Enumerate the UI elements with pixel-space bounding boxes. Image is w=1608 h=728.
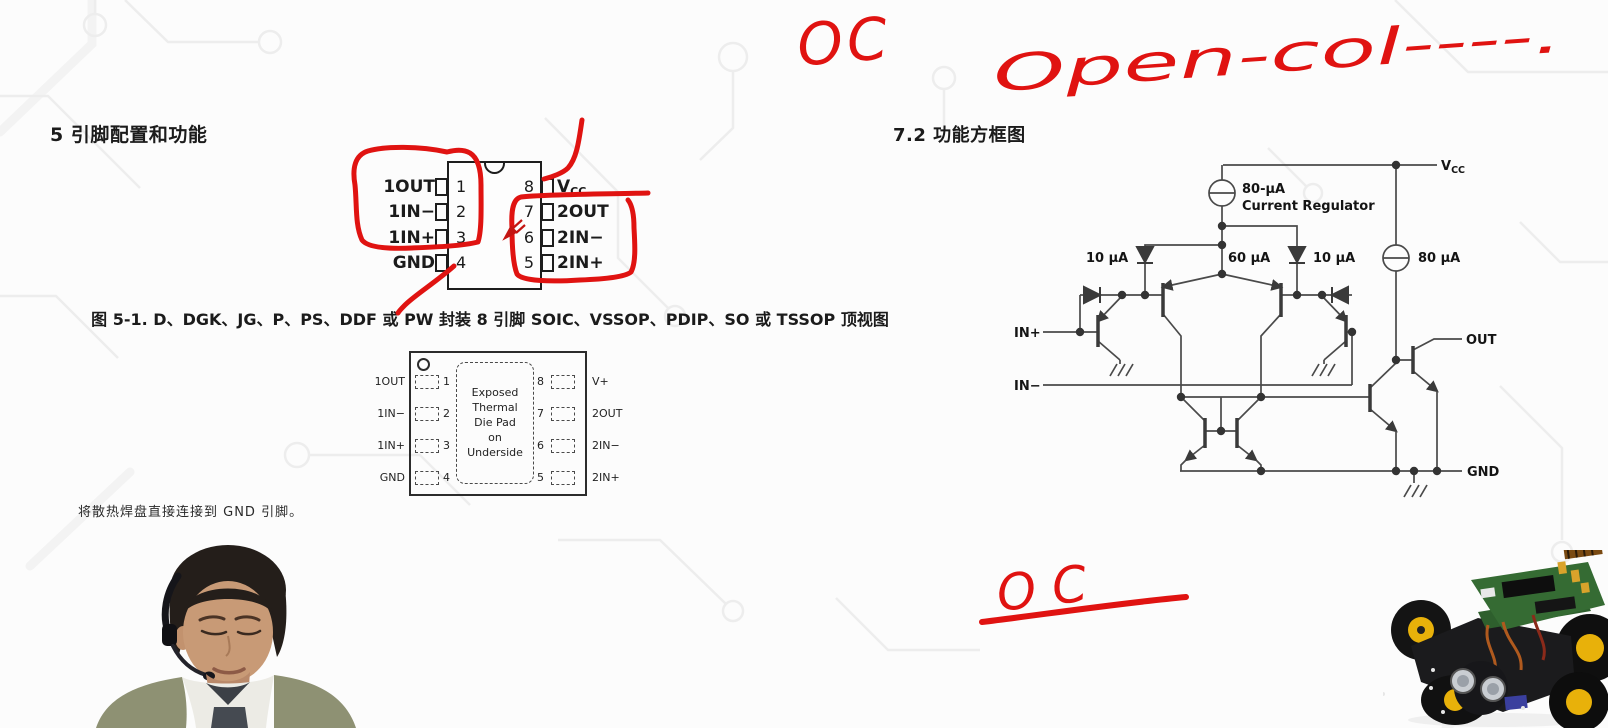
package2-pin3-label: 1IN+: [350, 439, 405, 453]
package1-pin3-stub: [435, 229, 448, 247]
package1-pin1-number: 1: [456, 177, 474, 197]
section-5-title: 5 引脚配置和功能: [50, 120, 207, 147]
package2-pin3-number: 3: [443, 439, 455, 453]
package1-pin2-number: 2: [456, 202, 474, 222]
package2-pin6-label: 2IN−: [592, 439, 652, 453]
package1-pin1-label: 1OUT: [355, 176, 435, 198]
package2-pin4-label: GND: [350, 471, 405, 485]
figure-5-1-caption: 图 5-1. D、DGK、JG、P、PS、DDF 或 PW 封装 8 引脚 SO…: [60, 306, 920, 330]
regulator-text-label: Current Regulator: [1242, 199, 1375, 214]
package1-pin6-label: 2IN−: [557, 227, 637, 249]
package2-pin8-pad: [551, 375, 575, 389]
package2-pin6-number: 6: [537, 439, 549, 453]
package2-pin1-number: 1: [443, 375, 455, 389]
package2-pin7-label: 2OUT: [592, 407, 652, 421]
circuit-wires: [1043, 165, 1462, 497]
current-80ua-label: 80 μA: [1418, 251, 1460, 266]
package2-pin4-pad: [415, 471, 439, 485]
out-label: OUT: [1466, 333, 1497, 348]
package2-pin4-number: 4: [443, 471, 455, 485]
current-10ua-left-label: 10 μA: [1086, 251, 1128, 266]
package1-pin8-stub: [541, 178, 554, 196]
thermal-pad-note: 将散热焊盘直接连接到 GND 引脚。: [78, 501, 303, 520]
pad-text-line4: on: [457, 430, 533, 445]
package2-pin6-pad: [551, 439, 575, 453]
gnd-label: GND: [1467, 465, 1500, 480]
package1-pin6-number: 6: [512, 228, 534, 248]
package1-pin3-label: 1IN+: [355, 227, 435, 249]
package2-pin8-label: V+: [592, 375, 652, 389]
webcam-presenter: [88, 528, 368, 728]
package2-pin5-pad: [551, 471, 575, 485]
package1-pin8-number: 8: [512, 177, 534, 197]
package1-pin6-stub: [541, 229, 554, 247]
package2-pin2-pad: [415, 407, 439, 421]
package1-pin7-stub: [541, 203, 554, 221]
package1-pin5-stub: [541, 254, 554, 272]
section-7-2-title: 7.2 功能方框图: [893, 121, 1026, 147]
vcc-sub: CC: [570, 185, 586, 198]
package1-pin4-stub: [435, 254, 448, 272]
package2-pin7-pad: [551, 407, 575, 421]
vcc-main: V: [557, 177, 570, 197]
transistor-bars: [1098, 283, 1413, 448]
package2-thermal-pad: Exposed Thermal Die Pad on Underside: [456, 362, 534, 484]
package1-pin7-number: 7: [512, 202, 534, 222]
package2-pin2-number: 2: [443, 407, 455, 421]
current-60ua-label: 60 μA: [1228, 251, 1270, 266]
functional-block-diagram: VCC 80-μA Current Regulator 10 μA 60 μA …: [980, 150, 1500, 510]
pad-text-line5: Underside: [457, 445, 533, 460]
package1-pin7-label: 2OUT: [557, 201, 637, 223]
current-10ua-right-label: 10 μA: [1313, 251, 1355, 266]
robot-car-illustration: [1383, 550, 1608, 728]
package1-pin2-stub: [435, 203, 448, 221]
package2-pin1-pad: [415, 375, 439, 389]
package2-pin8-number: 8: [537, 375, 549, 389]
pad-text-line1: Exposed: [457, 385, 533, 400]
pad-text-line3: Die Pad: [457, 415, 533, 430]
package1-pin5-label: 2IN+: [557, 252, 637, 274]
package1-pin4-number: 4: [456, 253, 474, 273]
regulator-value-label: 80-μA: [1242, 182, 1285, 197]
in-plus-label: IN+: [1014, 326, 1041, 341]
circuit-labels: VCC 80-μA Current Regulator 10 μA 60 μA …: [1014, 159, 1500, 480]
package1-pin2-label: 1IN−: [355, 201, 435, 223]
vcc-label: VCC: [1441, 159, 1465, 176]
package1-pin3-number: 3: [456, 228, 474, 248]
package1-pin8-label: VCC: [557, 176, 637, 203]
package2-pin1-marker: [417, 358, 430, 371]
package2-pin1-label: 1OUT: [350, 375, 405, 389]
video-frame: 5 引脚配置和功能 1OUT 1IN− 1IN+ GND 1 2 3 4 8 7…: [0, 0, 1608, 728]
presenter-illustration: [96, 545, 356, 728]
robot-car-image: [1383, 550, 1608, 728]
package2-pin5-label: 2IN+: [592, 471, 652, 485]
package2-pin7-number: 7: [537, 407, 549, 421]
package2-pin2-label: 1IN−: [350, 407, 405, 421]
package2-pin3-pad: [415, 439, 439, 453]
in-minus-label: IN−: [1014, 379, 1041, 394]
package1-pin4-label: GND: [355, 252, 435, 274]
pad-text-line2: Thermal: [457, 400, 533, 415]
package1-pin1-stub: [435, 178, 448, 196]
package1-pin5-number: 5: [512, 253, 534, 273]
package2-pin5-number: 5: [537, 471, 549, 485]
